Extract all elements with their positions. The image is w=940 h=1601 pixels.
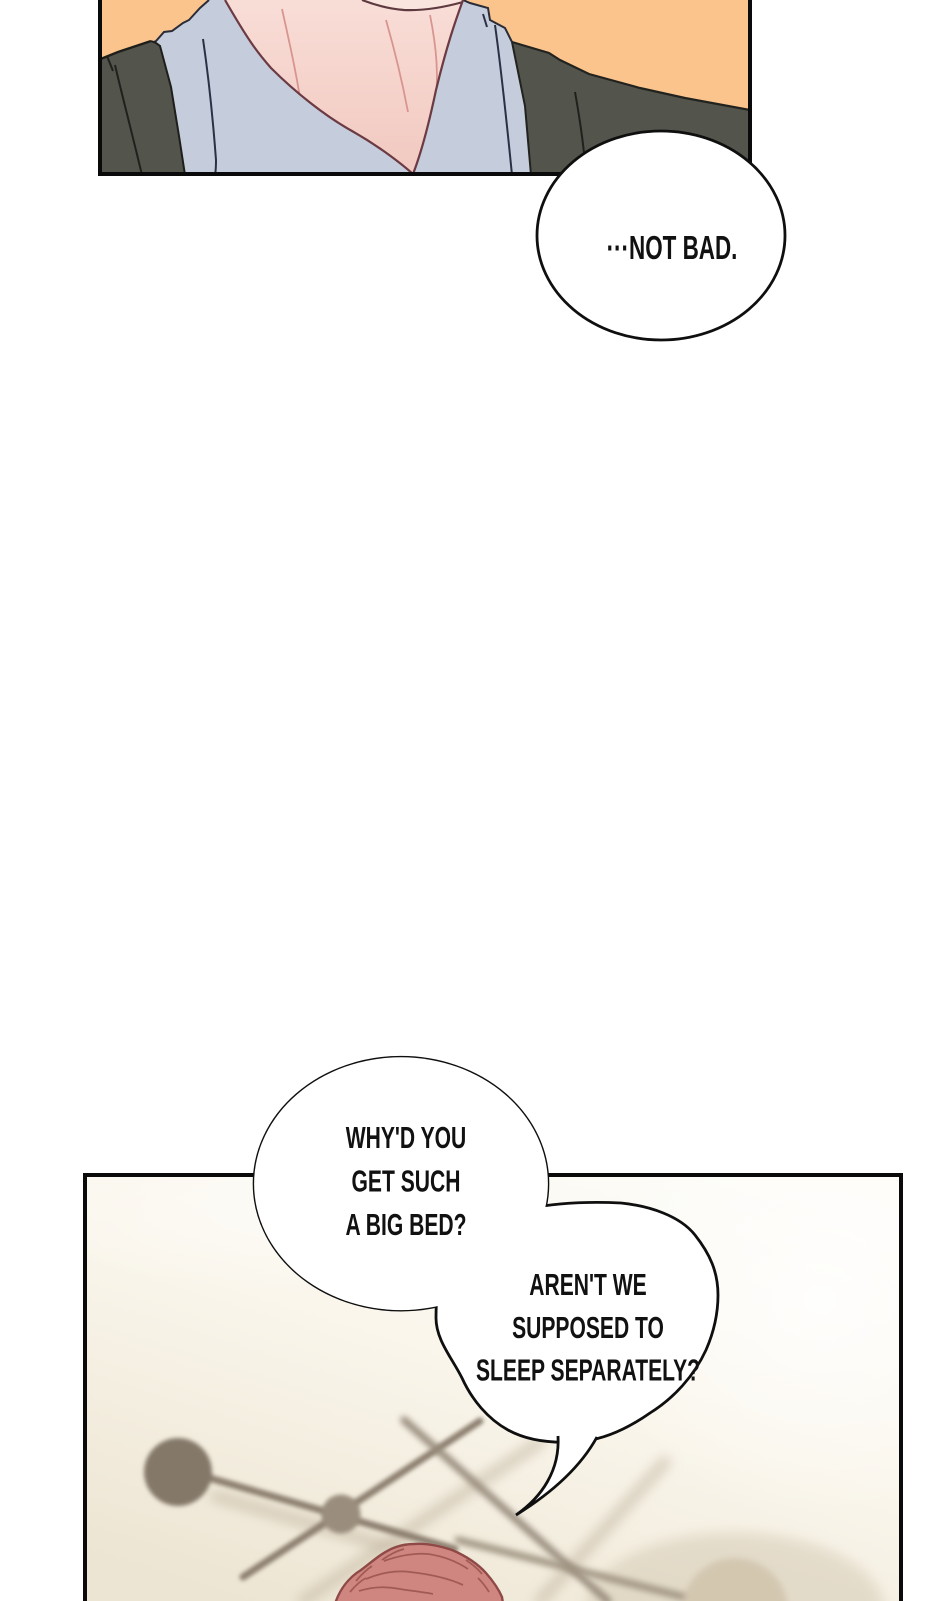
svg-text:WHY'D YOU: WHY'D YOU (346, 1120, 467, 1155)
svg-text:···NOT BAD.: ···NOT BAD. (607, 229, 738, 266)
svg-text:GET SUCH: GET SUCH (352, 1163, 461, 1198)
svg-text:A BIG BED?: A BIG BED? (346, 1207, 467, 1242)
svg-text:SLEEP SEPARATELY?: SLEEP SEPARATELY? (476, 1352, 700, 1387)
svg-text:AREN'T WE: AREN'T WE (529, 1267, 646, 1302)
svg-text:SUPPOSED TO: SUPPOSED TO (512, 1310, 664, 1345)
